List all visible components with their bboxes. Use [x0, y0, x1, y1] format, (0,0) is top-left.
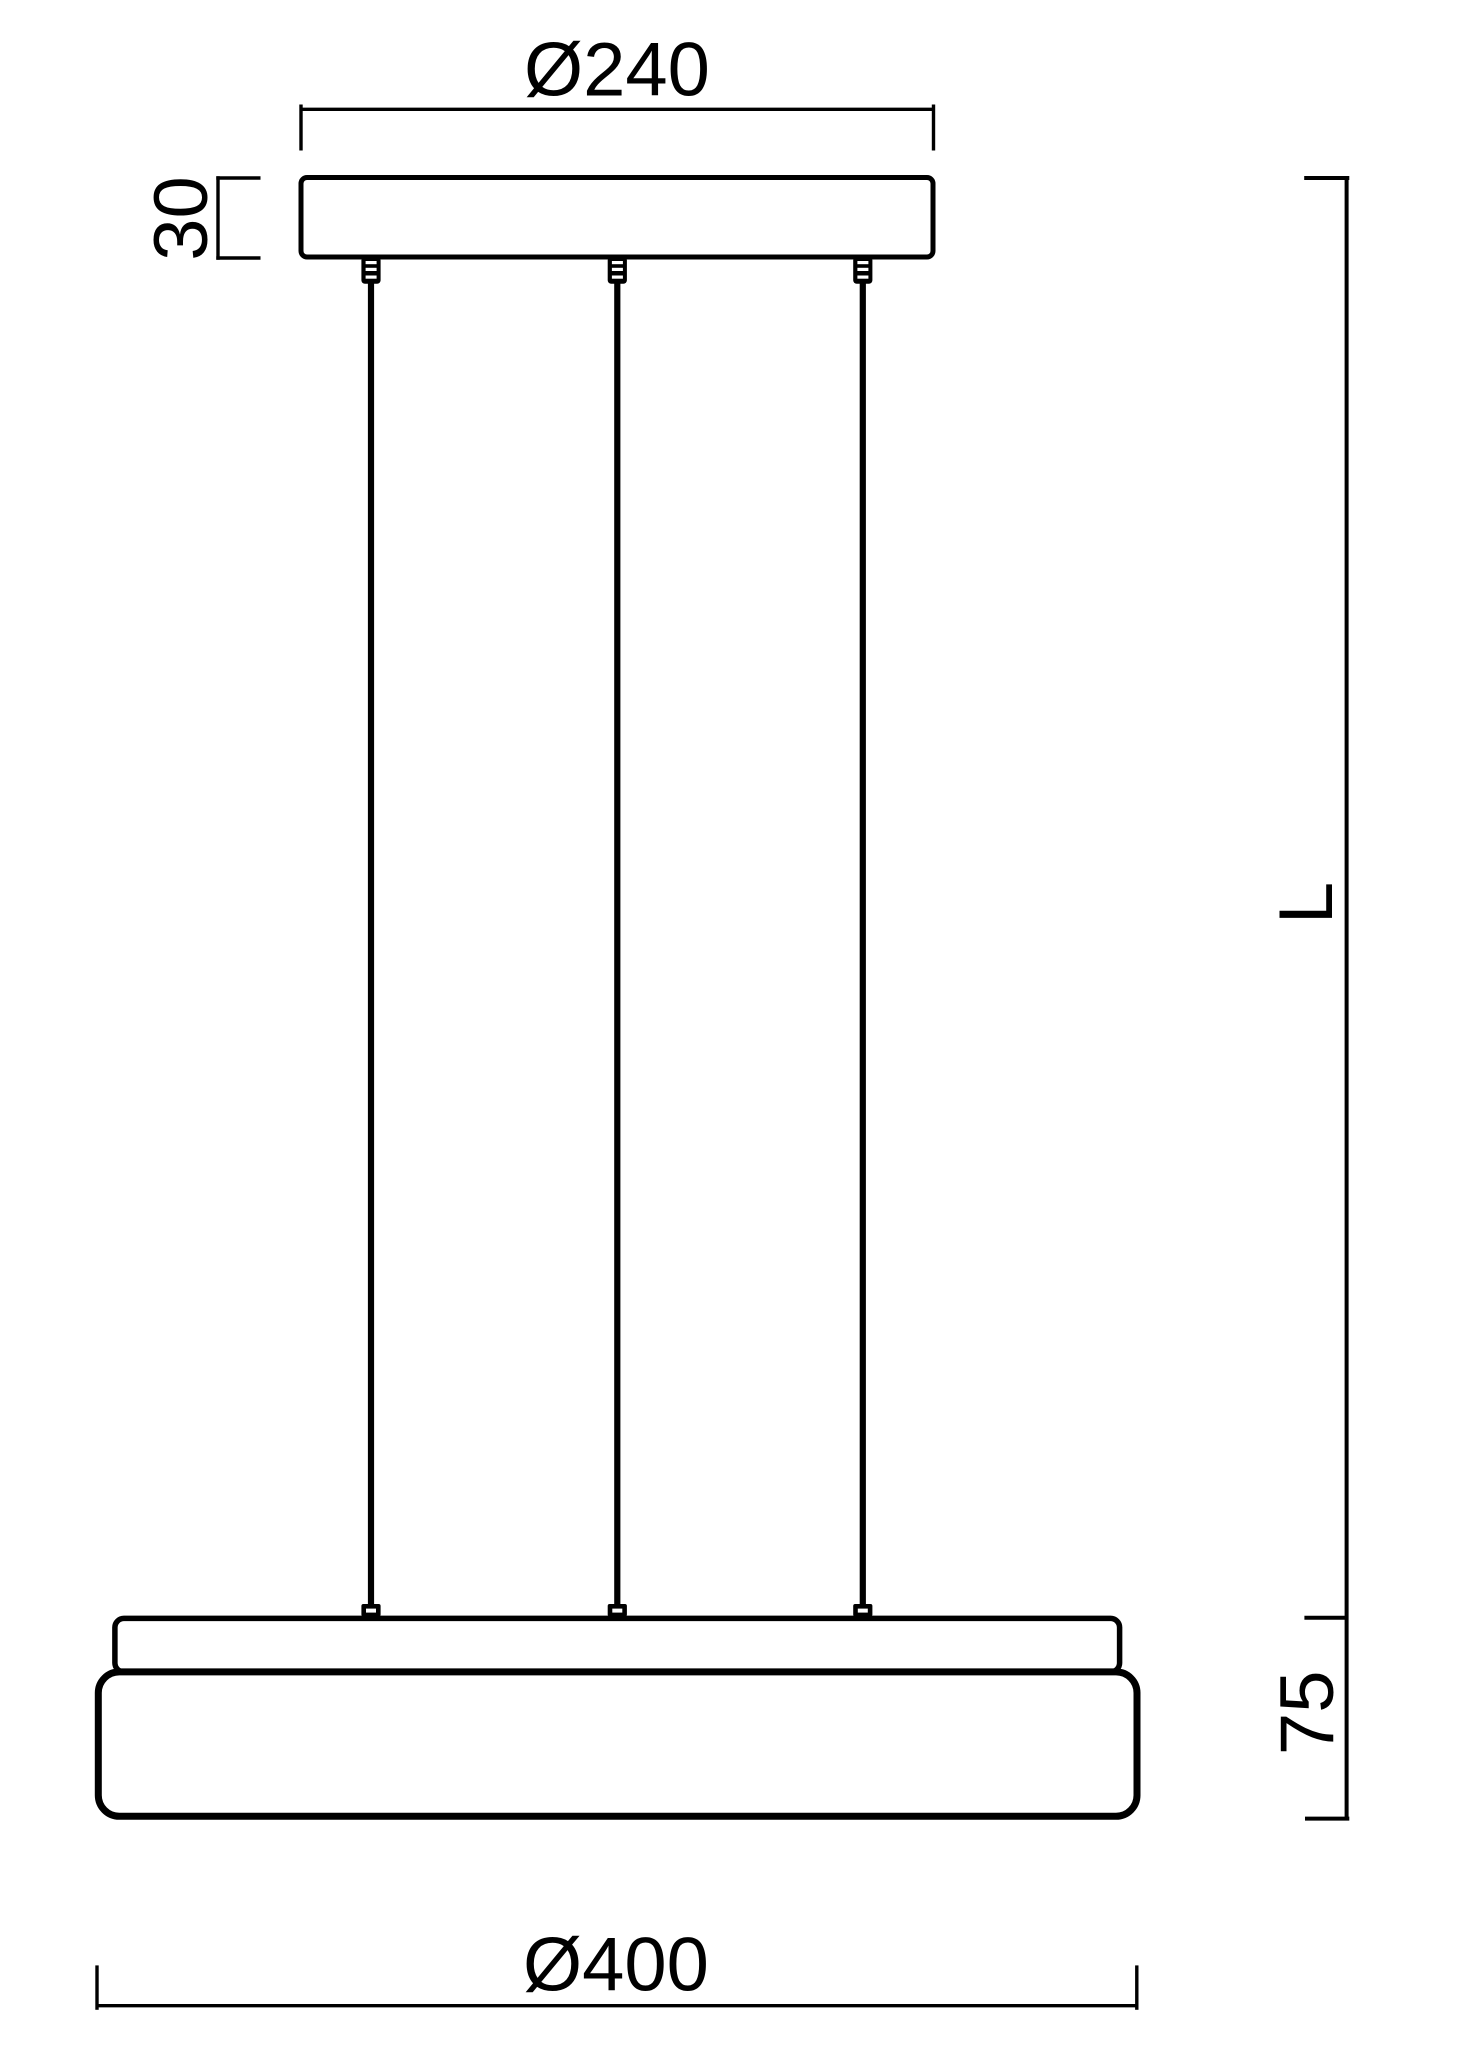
svg-text:75: 75: [1265, 1671, 1350, 1756]
svg-text:Ø400: Ø400: [523, 1923, 709, 2008]
svg-text:Ø240: Ø240: [524, 28, 710, 113]
svg-text:L: L: [1264, 882, 1349, 924]
svg-text:30: 30: [139, 176, 224, 261]
